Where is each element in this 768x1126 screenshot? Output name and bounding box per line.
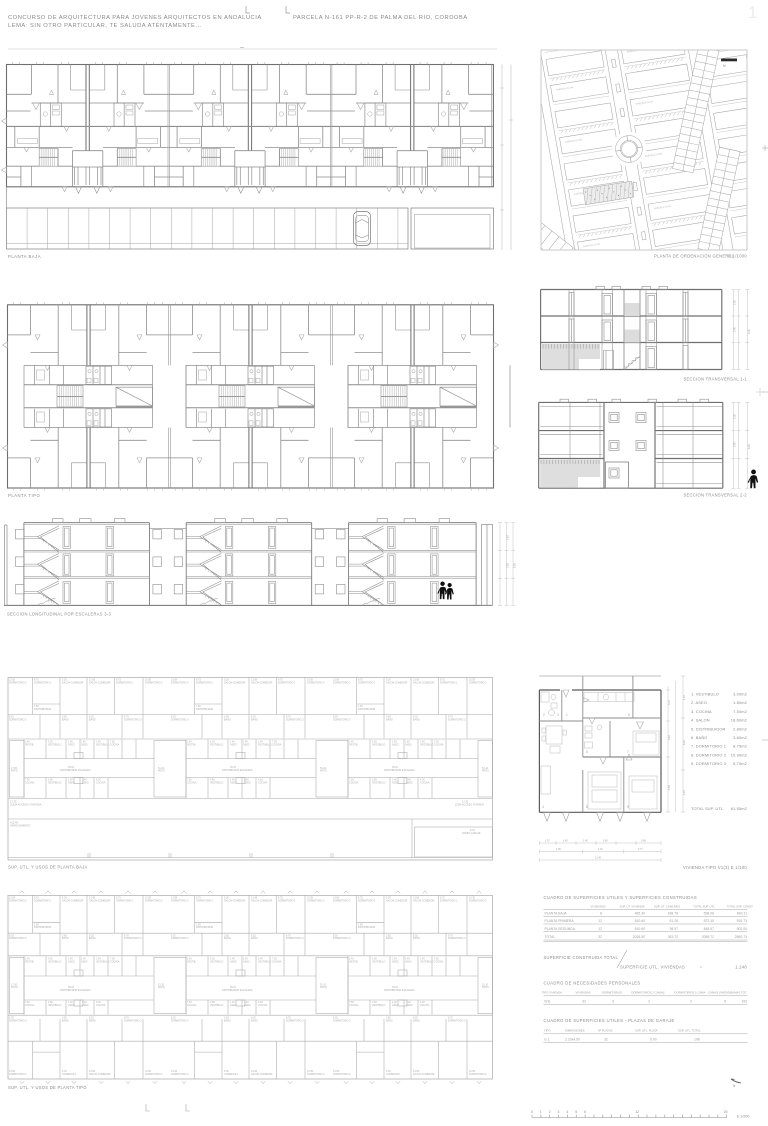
- svg-text:COCINA: COCINA: [434, 960, 444, 963]
- svg-text:7: 7: [627, 750, 629, 754]
- svg-text:BAÑO: BAÑO: [89, 937, 96, 940]
- svg-text:6. BAÑO: 6. BAÑO: [691, 735, 707, 740]
- svg-text:ASEO: ASEO: [392, 1004, 399, 1007]
- svg-text:9. DORMITORIO 3: 9. DORMITORIO 3: [691, 761, 726, 766]
- svg-text:DORMITORIO 1: DORMITORIO 1: [116, 899, 134, 902]
- svg-text:ASEO: ASEO: [81, 744, 88, 747]
- svg-text:2.80: 2.80: [506, 563, 509, 568]
- svg-text:BAÑO: BAÑO: [89, 719, 96, 722]
- svg-text:4.20: 4.20: [683, 695, 686, 700]
- svg-text:810.60: 810.60: [635, 919, 645, 923]
- svg-text:DORMITORIO 3: DORMITORIO 3: [171, 937, 189, 940]
- svg-text:COMEDOR 1: COMEDOR 1: [62, 1073, 77, 1076]
- svg-text:DORMITORIO 3: DORMITORIO 3: [286, 937, 304, 940]
- svg-text:COCINA: COCINA: [258, 1004, 268, 1007]
- svg-text:848.57: 848.57: [704, 927, 714, 931]
- svg-text:ASEO: ASEO: [406, 1004, 413, 1007]
- svg-text:TOTAL SUP. UTL: TOTAL SUP. UTL: [693, 905, 715, 909]
- svg-text:ASEO: ASEO: [230, 1004, 237, 1007]
- svg-text:COMEDOR 1: COMEDOR 1: [386, 1073, 401, 1076]
- svg-text:ZONA ACCESO VIVIENDA: ZONA ACCESO VIVIENDA: [455, 803, 484, 806]
- svg-text:BAÑO: BAÑO: [62, 719, 69, 722]
- svg-text:COCINA: COCINA: [349, 1004, 359, 1007]
- svg-text:DISTRIBUIDOR ESCALERA: DISTRIBUIDOR ESCALERA: [222, 989, 253, 992]
- svg-text:PATIO: PATIO: [11, 986, 18, 989]
- svg-text:902.00: 902.00: [737, 927, 747, 931]
- svg-text:8: 8: [586, 805, 588, 809]
- svg-text:2: 2: [543, 713, 545, 717]
- svg-text:APARCAMIENTO: APARCAMIENTO: [10, 823, 31, 827]
- svg-text:VESTIBULO: VESTIBULO: [372, 1004, 386, 1007]
- svg-text:DORMITORIO 1: DORMITORIO 1: [116, 682, 134, 685]
- svg-text:DORMITORIO 2: DORMITORIO 2: [145, 682, 163, 685]
- svg-text:2026.50: 2026.50: [633, 935, 645, 939]
- svg-text:5: 5: [575, 1110, 577, 1114]
- svg-text:PLANTA PRIMERA: PLANTA PRIMERA: [545, 919, 575, 923]
- svg-text:DORMITORIO 3: DORMITORIO 3: [9, 1019, 27, 1022]
- svg-text:DISTRIBUIDOR: DISTRIBUIDOR: [358, 708, 375, 711]
- svg-text:ASEO: ASEO: [82, 782, 89, 785]
- svg-text:SUPERFICIE UTL. VIVIENDAS: SUPERFICIE UTL. VIVIENDAS: [620, 965, 685, 970]
- svg-text:VESTIB.: VESTIB.: [349, 960, 359, 963]
- svg-text:DORMITORIO 1: DORMITORIO 1: [358, 682, 376, 685]
- svg-text:3: 3: [558, 1110, 560, 1114]
- svg-text:2: 2: [648, 999, 650, 1003]
- svg-text:BAÑO: BAÑO: [386, 1019, 393, 1022]
- svg-text:DORMITORIO 1: DORMITORIO 1: [196, 682, 214, 685]
- svg-text:DORMITORIO 2: DORMITORIO 2: [145, 899, 163, 902]
- svg-text:COCINA: COCINA: [110, 960, 120, 963]
- svg-text:1.80m2: 1.80m2: [733, 700, 747, 705]
- svg-text:SECCION TRANSVERSAL 2-2: SECCION TRANSVERSAL 2-2: [683, 493, 747, 498]
- svg-text:SUPERFICIE CONSTRUIDA TOTAL: SUPERFICIE CONSTRUIDA TOTAL: [544, 955, 619, 960]
- svg-text:DORMITORIO 2: DORMITORIO 2: [469, 899, 487, 902]
- svg-text:5. DISTRIBUIDOR: 5. DISTRIBUIDOR: [691, 726, 726, 731]
- svg-text:TIPO VIVIENDA: TIPO VIVIENDA: [542, 991, 562, 995]
- svg-text:VESTIBULO: VESTIBULO: [48, 1004, 62, 1007]
- svg-text:BAÑO: BAÑO: [386, 719, 393, 722]
- svg-text:DISTRIBUIDOR ESCALERA: DISTRIBUIDOR ESCALERA: [384, 989, 415, 992]
- svg-text:PATIO: PATIO: [158, 770, 165, 773]
- svg-text:DORMITORIO 3: DORMITORIO 3: [448, 1019, 466, 1022]
- svg-text:PATIO: PATIO: [11, 770, 18, 773]
- svg-text:ASEO: ASEO: [244, 782, 251, 785]
- svg-text:VESTIBULO: VESTIBULO: [210, 744, 224, 747]
- svg-text:DORMITORIO 2: DORMITORIO 2: [145, 1073, 163, 1076]
- svg-text:ASEO: ASEO: [68, 782, 75, 785]
- svg-text:ASEO: ASEO: [244, 1004, 251, 1007]
- svg-text:7. DORMITORIO 1: 7. DORMITORIO 1: [691, 744, 726, 749]
- svg-text:ASEO: ASEO: [243, 744, 250, 747]
- svg-text:VIVIENDAS: VIVIENDAS: [576, 991, 591, 995]
- svg-text:8.90: 8.90: [748, 329, 751, 334]
- svg-text:1. VESTIBULO: 1. VESTIBULO: [691, 692, 719, 697]
- svg-text:DORMITORIO 2: DORMITORIO 2: [307, 1073, 325, 1076]
- svg-text:SALON-COMEDOR: SALON-COMEDOR: [89, 1073, 111, 1076]
- svg-text:DISTRIBUIDOR: DISTRIBUIDOR: [358, 926, 375, 929]
- svg-text:DORMITORIO 3: DORMITORIO 3: [124, 1019, 142, 1022]
- svg-text:ASEO: ASEO: [406, 782, 413, 785]
- svg-text:SALON-COMEDOR: SALON-COMEDOR: [62, 682, 84, 685]
- svg-text:ASEO: ASEO: [230, 960, 237, 963]
- svg-text:PLANTA BAJA: PLANTA BAJA: [545, 912, 568, 916]
- svg-text:1.40: 1.40: [563, 840, 568, 843]
- svg-text:DORMITORIO 3: DORMITORIO 3: [171, 1019, 189, 1022]
- svg-text:38.97: 38.97: [670, 927, 679, 931]
- svg-text:DISTRIBUIDOR ESCALERA: DISTRIBUIDOR ESCALERA: [60, 769, 91, 772]
- svg-text:V(3): V(3): [544, 999, 550, 1003]
- svg-text:E 1/1000: E 1/1000: [728, 254, 747, 259]
- svg-text:DORMITORIO 3: DORMITORIO 3: [286, 1019, 304, 1022]
- svg-text:DORMITORIOS 2 CAMAS: DORMITORIOS 2 CAMAS: [631, 991, 664, 995]
- svg-text:SALON-COMEDOR: SALON-COMEDOR: [89, 682, 111, 685]
- svg-text:6: 6: [584, 1110, 586, 1114]
- svg-text:1.248: 1.248: [735, 965, 747, 970]
- svg-text:DORMITORIO 2: DORMITORIO 2: [469, 682, 487, 685]
- svg-text:DISTRIBUIDOR ESCALERA: DISTRIBUIDOR ESCALERA: [60, 989, 91, 992]
- svg-text:ASEO: ASEO: [68, 744, 75, 747]
- svg-text:5.55: 5.55: [668, 785, 671, 790]
- svg-text:6: 6: [586, 750, 588, 754]
- svg-text:CAMAS VIVIENDA: CAMAS VIVIENDA: [708, 991, 732, 995]
- svg-text:PATIO: PATIO: [320, 986, 327, 989]
- svg-text:VESTIB.: VESTIB.: [187, 744, 197, 747]
- svg-text:DORMITORIO 2: DORMITORIO 2: [333, 1073, 351, 1076]
- svg-text:3.00m2: 3.00m2: [733, 692, 747, 697]
- svg-text:ASEO: ASEO: [68, 1004, 75, 1007]
- svg-text:BAÑO: BAÑO: [62, 937, 69, 940]
- svg-text:5: 5: [628, 713, 630, 717]
- svg-text:61.55m2: 61.55m2: [731, 806, 747, 811]
- svg-text:DORMITORIO 2: DORMITORIO 2: [9, 682, 27, 685]
- svg-text:DISTRIBUIDOR: DISTRIBUIDOR: [34, 926, 51, 929]
- svg-text:DORMITORIO 3: DORMITORIO 3: [448, 937, 466, 940]
- svg-text:SALON-COMEDOR: SALON-COMEDOR: [62, 899, 84, 902]
- svg-text:BAÑO: BAÑO: [251, 1019, 258, 1022]
- svg-text:5.20: 5.20: [683, 740, 686, 745]
- svg-text:598.08: 598.08: [704, 912, 714, 916]
- svg-text:COCINA: COCINA: [96, 1004, 106, 1007]
- svg-text:3: 3: [557, 713, 559, 717]
- svg-text:ASEO: ASEO: [392, 744, 399, 747]
- svg-text:SALON-COMEDOR: SALON-COMEDOR: [413, 899, 435, 902]
- svg-text:TOTAL SUP. CONST.: TOTAL SUP. CONST.: [727, 905, 754, 909]
- svg-text:PARCELA N-161 PP-R-2 DE PALMA: PARCELA N-161 PP-R-2 DE PALMA DEL RIO, C…: [293, 15, 468, 21]
- svg-text:VESTIBULO: VESTIBULO: [210, 1004, 224, 1007]
- svg-text:SUP. UTL. TOTAL: SUP. UTL. TOTAL: [678, 1029, 701, 1033]
- svg-text:PLANTA BAJA: PLANTA BAJA: [8, 254, 41, 259]
- svg-text:SECCION LONGITUDINAL POR ESCAL: SECCION LONGITUDINAL POR ESCALERAS 3-3: [7, 612, 111, 617]
- svg-text:32: 32: [598, 935, 602, 939]
- svg-text:DORMITORIO 2: DORMITORIO 2: [171, 899, 189, 902]
- svg-text:3.60m2: 3.60m2: [733, 735, 747, 740]
- svg-text:9.90: 9.90: [650, 1037, 657, 1041]
- svg-text:G.1: G.1: [544, 1037, 550, 1041]
- svg-text:VESTIBULO: VESTIBULO: [372, 960, 386, 963]
- svg-text:COCINA: COCINA: [96, 782, 106, 785]
- svg-text:DISTRIBUIDOR ESCALERA: DISTRIBUIDOR ESCALERA: [222, 769, 253, 772]
- svg-text:12: 12: [598, 919, 602, 923]
- svg-text:2.20x4.50: 2.20x4.50: [565, 1037, 580, 1041]
- svg-text:CUADRO DE NECESIDADES PERSO: CUADRO DE NECESIDADES PERSONALES: [544, 981, 641, 986]
- svg-text:915.73: 915.73: [737, 919, 747, 923]
- svg-text:BAÑO: BAÑO: [89, 1019, 96, 1022]
- svg-text:DORMITORIO 2: DORMITORIO 2: [333, 682, 351, 685]
- svg-text:BAÑO: BAÑO: [224, 1019, 231, 1022]
- svg-text:4: 4: [566, 1110, 568, 1114]
- svg-text:COCINA: COCINA: [110, 744, 120, 747]
- svg-text:2.80: 2.80: [734, 327, 737, 332]
- svg-text:4.35: 4.35: [556, 848, 561, 851]
- svg-text:DORMITORIO 3: DORMITORIO 3: [124, 719, 142, 722]
- svg-text:9: 9: [627, 805, 629, 809]
- svg-text:ASEO: ASEO: [405, 960, 412, 963]
- svg-text:DORMITORIO 1: DORMITORIO 1: [196, 899, 214, 902]
- svg-text:COCINA: COCINA: [272, 960, 282, 963]
- svg-text:168.78: 168.78: [668, 912, 678, 916]
- svg-text:3.60: 3.60: [668, 735, 671, 740]
- svg-text:7.50m2: 7.50m2: [733, 709, 747, 714]
- svg-text:VESTIBULO: VESTIBULO: [258, 744, 272, 747]
- svg-text:DORMITORIO 3: DORMITORIO 3: [448, 719, 466, 722]
- svg-text:CAMAS TOT.: CAMAS TOT.: [730, 991, 747, 995]
- svg-text:18.60m2: 18.60m2: [731, 718, 747, 723]
- svg-text:VESTIBULO: VESTIBULO: [210, 960, 224, 963]
- svg-text:3.10: 3.10: [668, 700, 671, 705]
- svg-text:1: 1: [540, 1110, 542, 1114]
- svg-text:DORMITORIO 3: DORMITORIO 3: [333, 719, 351, 722]
- svg-text:ASEO: ASEO: [82, 1004, 89, 1007]
- svg-text:VESTIBULO: VESTIBULO: [258, 960, 272, 963]
- svg-text:DORMITORIO 2: DORMITORIO 2: [307, 682, 325, 685]
- svg-text:DORMITORIO 3: DORMITORIO 3: [9, 937, 27, 940]
- svg-text:SUP. UTL. Y USOS DE PLANTA BAJ: SUP. UTL. Y USOS DE PLANTA BAJA: [8, 865, 88, 870]
- svg-text:2089.72: 2089.72: [702, 935, 714, 939]
- svg-text:BAÑO: BAÑO: [62, 1019, 69, 1022]
- svg-text:BAÑO: BAÑO: [224, 937, 231, 940]
- svg-text:192: 192: [741, 999, 747, 1003]
- svg-text:SALON-COMEDOR: SALON-COMEDOR: [251, 682, 273, 685]
- svg-text:2.80: 2.80: [734, 442, 737, 447]
- svg-text:SALON-COMEDOR: SALON-COMEDOR: [386, 899, 408, 902]
- svg-text:ASEO: ASEO: [81, 960, 88, 963]
- svg-text:263.72: 263.72: [668, 935, 678, 939]
- svg-text:VESTIB.: VESTIB.: [25, 744, 35, 747]
- svg-text:CUADRO DE SUPERFICIES UTILE: CUADRO DE SUPERFICIES UTILES Y SUPERFICI…: [544, 895, 697, 900]
- svg-text:DORMITORIO 3: DORMITORIO 3: [333, 937, 351, 940]
- svg-text:SALON-COMEDOR: SALON-COMEDOR: [224, 682, 246, 685]
- svg-text:COCINA: COCINA: [258, 782, 268, 785]
- svg-text:4.20: 4.20: [683, 790, 686, 795]
- svg-text:DORMITORIO 1: DORMITORIO 1: [440, 682, 458, 685]
- svg-text:ASEO: ASEO: [230, 744, 237, 747]
- svg-text:1.40: 1.40: [583, 840, 588, 843]
- svg-text:810.60: 810.60: [635, 927, 645, 931]
- svg-text:PATIO: PATIO: [482, 770, 489, 773]
- svg-text:VESTIBULO: VESTIBULO: [420, 744, 434, 747]
- svg-text:COMEDOR 1: COMEDOR 1: [224, 1073, 239, 1076]
- svg-text:SALON-COMEDOR: SALON-COMEDOR: [251, 1073, 273, 1076]
- svg-text:ASEO: ASEO: [230, 782, 237, 785]
- svg-text:3.77: 3.77: [638, 848, 643, 851]
- svg-text:0: 0: [531, 1110, 533, 1114]
- svg-text:DORMITORIO 3: DORMITORIO 3: [124, 937, 142, 940]
- svg-text:DORMITORIO 3: DORMITORIO 3: [286, 719, 304, 722]
- svg-text:Nº PLAZAS: Nº PLAZAS: [598, 1029, 613, 1033]
- svg-text:SALON-COMEDOR: SALON-COMEDOR: [224, 899, 246, 902]
- svg-text:SALON-COMEDOR: SALON-COMEDOR: [251, 899, 273, 902]
- svg-text:2.80: 2.80: [506, 535, 509, 540]
- svg-text:1: 1: [748, 3, 757, 22]
- svg-text:12.45: 12.45: [595, 857, 602, 860]
- svg-text:DORMITORIO 2: DORMITORIO 2: [333, 899, 351, 902]
- svg-text:PATIO: PATIO: [482, 986, 489, 989]
- svg-text:2. ASEO: 2. ASEO: [691, 700, 707, 705]
- svg-text:DISTRIBUIDOR: DISTRIBUIDOR: [196, 926, 213, 929]
- svg-text:VESTIBULO: VESTIBULO: [372, 744, 386, 747]
- svg-text:COCINA: COCINA: [420, 1004, 430, 1007]
- svg-text:PLANTA SEGUNDA: PLANTA SEGUNDA: [545, 927, 576, 931]
- svg-text:DORMITORIO 1: DORMITORIO 1: [34, 682, 52, 685]
- svg-text:DORMITORIO 3: DORMITORIO 3: [9, 719, 27, 722]
- svg-text:DISTRIBUIDOR: DISTRIBUIDOR: [34, 708, 51, 711]
- svg-text:2: 2: [549, 1110, 551, 1114]
- svg-text:LEMA: SIN OTRO PARTICULAR, TE: LEMA: SIN OTRO PARTICULAR, TE SALUDA ATE…: [8, 23, 202, 29]
- svg-text:DORMITORIO 1: DORMITORIO 1: [278, 682, 296, 685]
- svg-text:VESTIBULO: VESTIBULO: [96, 744, 110, 747]
- svg-text:VESTIB.: VESTIB.: [187, 960, 197, 963]
- svg-text:6: 6: [724, 999, 726, 1003]
- svg-text:VIVIENDA TIPO V1(3): VIVIENDA TIPO V1(3): [683, 865, 730, 870]
- svg-text:DORMITORIO 2: DORMITORIO 2: [9, 1073, 27, 1076]
- svg-text:1: 1: [566, 713, 568, 717]
- svg-text:DORMITORIO 2: DORMITORIO 2: [469, 1073, 487, 1076]
- svg-text:DORMITORIO 2: DORMITORIO 2: [171, 682, 189, 685]
- svg-text:COCINA: COCINA: [187, 782, 197, 785]
- svg-text:BAÑO: BAÑO: [251, 937, 258, 940]
- svg-text:VESTIBULO: VESTIBULO: [48, 744, 62, 747]
- svg-text:DORMITORIOS: DORMITORIOS: [602, 991, 622, 995]
- svg-text:ASEO: ASEO: [392, 782, 399, 785]
- svg-text:COCINA: COCINA: [25, 1004, 35, 1007]
- svg-text:843.11: 843.11: [737, 912, 747, 916]
- svg-text:SUP. UT. COMUNES: SUP. UT. COMUNES: [654, 905, 680, 909]
- svg-text:DORMITORIO 2: DORMITORIO 2: [9, 899, 27, 902]
- svg-text:COCINA: COCINA: [187, 1004, 197, 1007]
- svg-text:PATIO: PATIO: [158, 986, 165, 989]
- svg-text:BAÑO: BAÑO: [386, 937, 393, 940]
- svg-text:DORMITORIO 1: DORMITORIO 1: [278, 899, 296, 902]
- svg-text:RAMPA GARAJE: RAMPA GARAJE: [462, 832, 481, 835]
- svg-text:485.30: 485.30: [635, 912, 645, 916]
- svg-text:DIMENSIONES: DIMENSIONES: [565, 1029, 585, 1033]
- svg-text:VESTIB.: VESTIB.: [25, 960, 35, 963]
- svg-text:DORMITORIO 1: DORMITORIO 1: [34, 899, 52, 902]
- svg-text:32: 32: [582, 999, 586, 1003]
- svg-text:0: 0: [690, 999, 692, 1003]
- svg-text:8.90: 8.90: [514, 563, 517, 568]
- svg-text:TOTAL SUP. UTL.: TOTAL SUP. UTL.: [691, 806, 724, 811]
- svg-text:SALON-COMEDOR: SALON-COMEDOR: [413, 682, 435, 685]
- svg-text:BAÑO: BAÑO: [224, 719, 231, 722]
- svg-text:VESTIBULO: VESTIBULO: [372, 782, 386, 785]
- svg-text:PLANTA TIPO: PLANTA TIPO: [8, 493, 40, 498]
- svg-text:2660.73: 2660.73: [735, 935, 747, 939]
- svg-text:PATIO: PATIO: [320, 770, 327, 773]
- svg-text:E 1/200: E 1/200: [737, 1115, 749, 1119]
- svg-text:198: 198: [694, 1037, 700, 1041]
- svg-text:ZONA ACCESO VIVIENDA: ZONA ACCESO VIVIENDA: [10, 802, 42, 806]
- svg-text:DORMITORIO 3: DORMITORIO 3: [333, 1019, 351, 1022]
- svg-text:1.97: 1.97: [545, 840, 550, 843]
- svg-text:DORMITORIO 1: DORMITORIO 1: [440, 899, 458, 902]
- svg-text:3. COCINA: 3. COCINA: [691, 709, 712, 714]
- svg-text:2.80m2: 2.80m2: [733, 726, 747, 731]
- svg-text:12: 12: [635, 1110, 639, 1114]
- svg-text:TIPO: TIPO: [544, 1029, 551, 1033]
- svg-text:E 1/100: E 1/100: [731, 865, 748, 870]
- svg-text:4. SALON: 4. SALON: [691, 718, 710, 723]
- svg-text:ASEO: ASEO: [405, 744, 412, 747]
- svg-text:VIVIENDAS: VIVIENDAS: [591, 905, 606, 909]
- svg-text:ASEO: ASEO: [392, 960, 399, 963]
- svg-text:BAÑO: BAÑO: [413, 719, 420, 722]
- svg-text:20: 20: [724, 1110, 728, 1114]
- svg-text:SALON-COMEDOR: SALON-COMEDOR: [386, 682, 408, 685]
- svg-text:DISTRIBUIDOR: DISTRIBUIDOR: [196, 708, 213, 711]
- svg-text:32: 32: [604, 1037, 608, 1041]
- svg-text:8. DORMITORIO 2: 8. DORMITORIO 2: [691, 752, 726, 757]
- svg-text:SUP. UTL. Y USOS DE PLANTA TIP: SUP. UTL. Y USOS DE PLANTA TIPO: [8, 1085, 87, 1090]
- svg-text:COCINA: COCINA: [434, 744, 444, 747]
- svg-text:VESTIB.: VESTIB.: [349, 744, 359, 747]
- svg-text:DORMITORIO 1: DORMITORIO 1: [358, 899, 376, 902]
- svg-text:8.75m2: 8.75m2: [733, 744, 747, 749]
- svg-text:VESTIBULO: VESTIBULO: [48, 782, 62, 785]
- svg-text:2.88: 2.88: [641, 840, 646, 843]
- svg-text:SUP. UT. VIVIENDA: SUP. UT. VIVIENDA: [620, 905, 645, 909]
- svg-text:8.70m2: 8.70m2: [733, 761, 747, 766]
- svg-text:VESTIBULO: VESTIBULO: [420, 960, 434, 963]
- svg-text:8: 8: [600, 912, 602, 916]
- svg-text:2.80: 2.80: [734, 414, 737, 419]
- svg-text:CUADRO DE SUPERFICIES UTILE: CUADRO DE SUPERFICIES UTILES - PLAZAS DE…: [544, 1018, 675, 1023]
- svg-text:DORMITORIO 2: DORMITORIO 2: [171, 1073, 189, 1076]
- svg-text:VESTIBULO: VESTIBULO: [96, 960, 110, 963]
- svg-text:61.26: 61.26: [670, 919, 679, 923]
- svg-text:PLANTA DE ORDENACION GENERAL: PLANTA DE ORDENACION GENERAL: [654, 254, 735, 259]
- svg-text:DORMITORIO 2: DORMITORIO 2: [307, 899, 325, 902]
- svg-text:CONCURSO DE ARQUITECTURA PARA: CONCURSO DE ARQUITECTURA PARA JOVENES AR…: [8, 15, 262, 21]
- svg-text:DORMITORIOS 1 CAMA: DORMITORIOS 1 CAMA: [674, 991, 705, 995]
- svg-text:3: 3: [612, 999, 614, 1003]
- svg-text:ASEO: ASEO: [68, 960, 75, 963]
- svg-text:COCINA: COCINA: [420, 782, 430, 785]
- svg-text:VESTIBULO: VESTIBULO: [48, 960, 62, 963]
- svg-text:4.10: 4.10: [598, 848, 603, 851]
- svg-text:BAÑO: BAÑO: [413, 937, 420, 940]
- svg-text:SALON-COMEDOR: SALON-COMEDOR: [413, 1073, 435, 1076]
- svg-text:COCINA: COCINA: [25, 782, 35, 785]
- svg-text:DORMITORIO 3: DORMITORIO 3: [171, 719, 189, 722]
- svg-text:SALON-COMEDOR: SALON-COMEDOR: [89, 899, 111, 902]
- svg-text:COCINA: COCINA: [272, 744, 282, 747]
- svg-text:COCINA: COCINA: [349, 782, 359, 785]
- svg-text:BAÑO: BAÑO: [413, 1019, 420, 1022]
- svg-text:SECCION TRANSVERSAL 1-1: SECCION TRANSVERSAL 1-1: [683, 377, 747, 382]
- svg-text:872.15: 872.15: [704, 919, 714, 923]
- svg-text:2.60: 2.60: [603, 840, 608, 843]
